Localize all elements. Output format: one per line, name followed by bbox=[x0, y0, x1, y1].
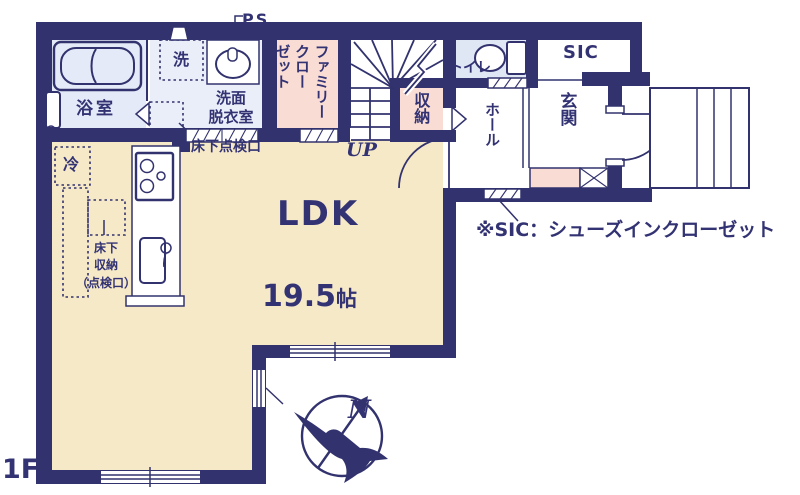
bathroom-divider-wall bbox=[136, 40, 149, 125]
washroom-label: 洗面 脱衣室 bbox=[196, 89, 266, 127]
window-mid-bottom-icon bbox=[290, 342, 390, 361]
sic-note: ※SIC：シューズインクローゼット bbox=[476, 219, 775, 242]
bird-silhouette-icon bbox=[294, 412, 388, 483]
up-label: UP bbox=[346, 139, 377, 162]
bath-counter-icon bbox=[46, 92, 60, 134]
washbasin-icon bbox=[207, 40, 259, 84]
floor-label: 1F bbox=[2, 454, 39, 486]
window-bottom-left-icon bbox=[101, 467, 200, 487]
underfloor-storage-label: 床下 収納 （点検口） bbox=[70, 240, 142, 292]
fridge-label: 冷 bbox=[63, 155, 79, 174]
hall-step-edge bbox=[523, 88, 529, 168]
storage-door-icon bbox=[452, 107, 466, 131]
washroom-hatch-icon bbox=[150, 102, 183, 130]
bathtub-icon bbox=[54, 42, 141, 90]
entrance-label: 玄関 bbox=[556, 92, 576, 154]
genkan-step-strip bbox=[530, 168, 580, 188]
hall-label: ホール bbox=[483, 102, 501, 172]
ldk-size-unit: 帖 bbox=[336, 287, 357, 311]
ldk-size-label: 19.5帖 bbox=[262, 243, 357, 315]
sic-label: SIC bbox=[563, 42, 599, 64]
genkan-hatch-icon bbox=[580, 168, 608, 188]
underfloor-hatch-label: 床下点検口 bbox=[191, 139, 261, 156]
ldk-label: LDK bbox=[277, 194, 359, 235]
bathroom-label: 浴室 bbox=[76, 99, 116, 119]
storage-label: 収納 bbox=[411, 92, 430, 134]
vent-icon bbox=[170, 27, 188, 40]
porch-steps-icon bbox=[650, 88, 749, 188]
ldk-size-number: 19.5 bbox=[262, 279, 336, 314]
washer-label: 洗 bbox=[173, 50, 189, 69]
floor-plan: N PS 浴室 洗 洗面 脱衣室 ファミリー クロー ゼット UP 収納 トイレ… bbox=[0, 0, 800, 495]
bathroom-door-icon bbox=[136, 103, 149, 125]
toilet-label: トイレ bbox=[449, 60, 491, 77]
ldk-hall-door-icon bbox=[399, 138, 449, 188]
window-side-icon bbox=[253, 370, 283, 407]
family-closet-label: ファミリー クロー ゼット bbox=[272, 44, 331, 136]
underfloor-storage-icon bbox=[88, 200, 125, 235]
compass-icon: N bbox=[294, 395, 388, 483]
hall-bottom-hatch-icon bbox=[484, 189, 521, 221]
ps-label: PS bbox=[242, 10, 269, 29]
compass-north-label: N bbox=[347, 395, 372, 424]
toilet-sliding-door-icon bbox=[488, 78, 527, 88]
